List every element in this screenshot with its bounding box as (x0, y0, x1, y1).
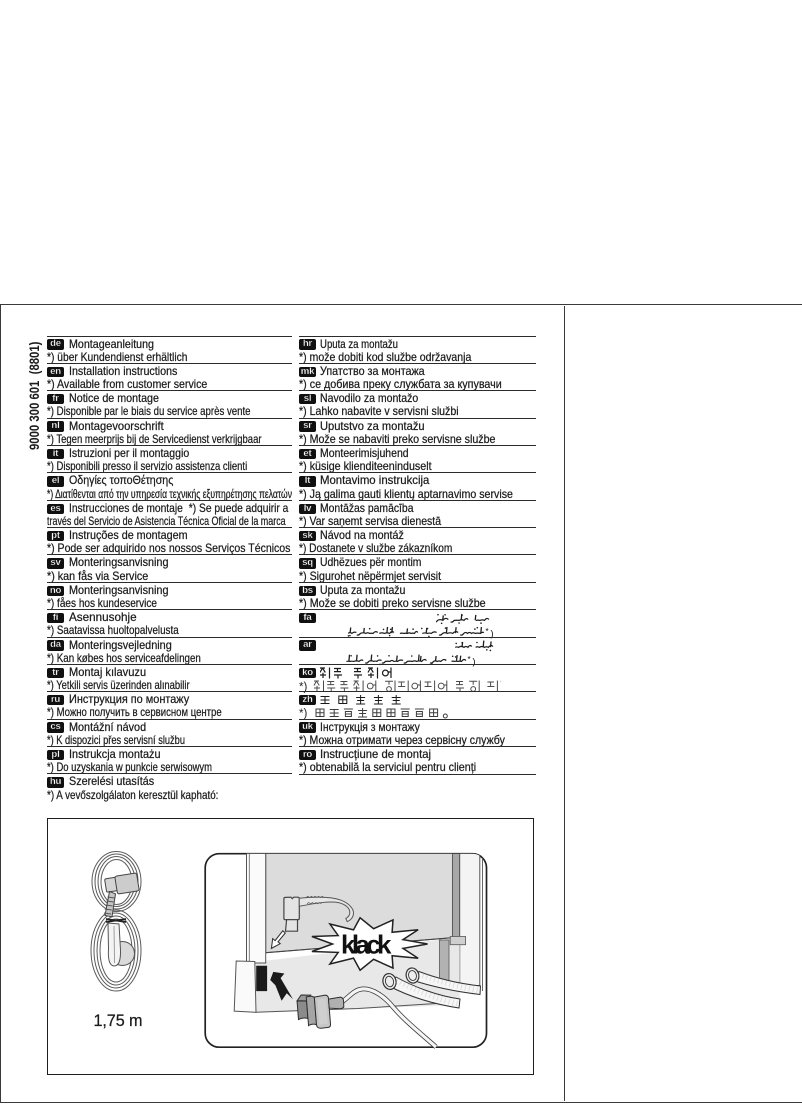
svg-text:klack: klack (341, 929, 392, 959)
svg-text:*: * (485, 627, 488, 636)
svg-text:*: * (467, 655, 470, 664)
